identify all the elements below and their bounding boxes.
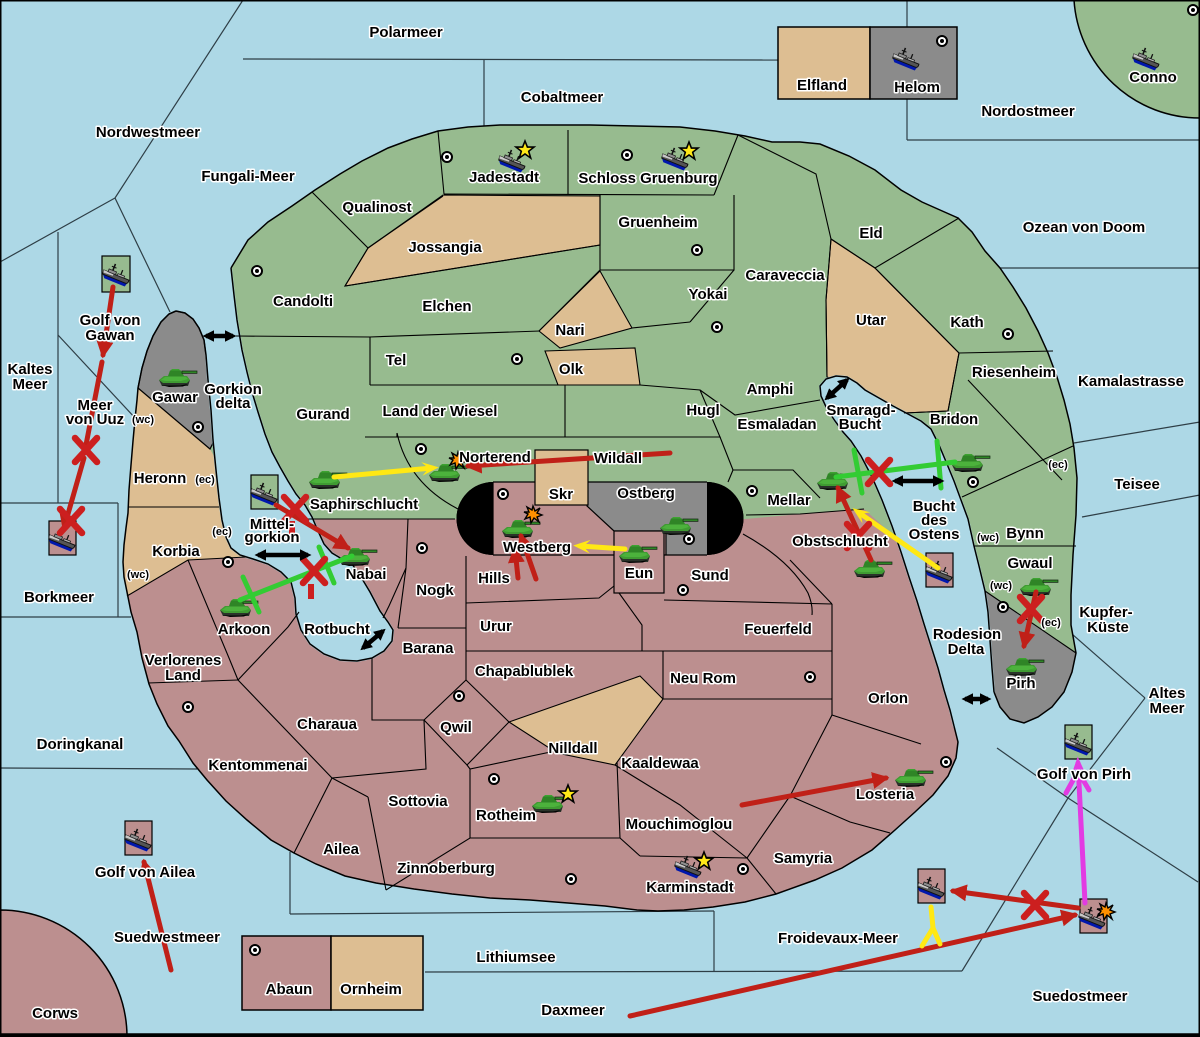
svg-text:Westberg: Westberg (503, 539, 571, 556)
svg-text:Land: Land (165, 667, 201, 684)
svg-text:Zinnoberburg: Zinnoberburg (397, 860, 495, 877)
svg-text:Gurand: Gurand (296, 406, 349, 423)
svg-text:Candolti: Candolti (273, 293, 333, 310)
svg-text:Kentommenai: Kentommenai (208, 757, 307, 774)
svg-text:(ec): (ec) (1041, 617, 1061, 629)
svg-text:Norterend: Norterend (459, 449, 531, 466)
svg-text:(wc): (wc) (127, 569, 149, 581)
svg-text:Kamalastrasse: Kamalastrasse (1078, 373, 1184, 390)
svg-text:Bynn: Bynn (1006, 525, 1044, 542)
svg-text:Abaun: Abaun (266, 981, 313, 998)
svg-text:Delta: Delta (948, 641, 985, 658)
svg-text:Qwil: Qwil (440, 719, 472, 736)
svg-text:Tel: Tel (386, 352, 407, 369)
svg-text:Elchen: Elchen (422, 298, 471, 315)
svg-text:Amphi: Amphi (747, 381, 794, 398)
svg-text:delta: delta (215, 395, 251, 412)
svg-text:Charaua: Charaua (297, 716, 358, 733)
svg-text:Gawar: Gawar (152, 389, 198, 406)
svg-text:Wildall: Wildall (594, 450, 642, 467)
svg-text:(ec): (ec) (195, 474, 215, 486)
svg-text:Schloss Gruenburg: Schloss Gruenburg (578, 170, 717, 187)
svg-text:Küste: Küste (1087, 619, 1129, 636)
svg-text:Meer: Meer (12, 376, 47, 393)
svg-text:Ornheim: Ornheim (340, 981, 402, 998)
svg-text:Froidevaux-Meer: Froidevaux-Meer (778, 930, 898, 947)
svg-text:Suedwestmeer: Suedwestmeer (114, 929, 220, 946)
svg-text:Cobaltmeer: Cobaltmeer (521, 89, 604, 106)
svg-text:Fungali-Meer: Fungali-Meer (201, 168, 295, 185)
svg-text:Elfland: Elfland (797, 77, 847, 94)
svg-text:Rotheim: Rotheim (476, 807, 536, 824)
svg-text:Golf von Ailea: Golf von Ailea (95, 864, 196, 881)
svg-text:(wc): (wc) (132, 414, 154, 426)
svg-text:Ostberg: Ostberg (617, 485, 675, 502)
svg-text:Sottovia: Sottovia (388, 793, 448, 810)
svg-text:Qualinost: Qualinost (342, 199, 411, 216)
svg-text:Yokai: Yokai (689, 286, 728, 303)
svg-text:Mouchimoglou: Mouchimoglou (626, 816, 733, 833)
svg-text:Eun: Eun (625, 565, 653, 582)
svg-text:Rotbucht: Rotbucht (304, 621, 370, 638)
svg-text:Gruenheim: Gruenheim (618, 214, 697, 231)
svg-text:Kath: Kath (950, 314, 983, 331)
svg-text:Helom: Helom (894, 79, 940, 96)
svg-text:Samyria: Samyria (774, 850, 833, 867)
svg-text:Suedostmeer: Suedostmeer (1032, 988, 1127, 1005)
svg-text:Urur: Urur (480, 618, 512, 635)
svg-text:(wc): (wc) (990, 580, 1012, 592)
svg-text:gorkion: gorkion (245, 529, 300, 546)
svg-text:Nabai: Nabai (346, 566, 387, 583)
svg-text:Caraveccia: Caraveccia (745, 267, 825, 284)
svg-text:Gawan: Gawan (85, 327, 134, 344)
svg-text:Obstschlucht: Obstschlucht (792, 533, 888, 550)
svg-text:Ostens: Ostens (909, 526, 960, 543)
svg-text:Korbia: Korbia (152, 543, 200, 560)
svg-text:Olk: Olk (559, 361, 584, 378)
svg-text:Pirh: Pirh (1006, 675, 1035, 692)
svg-text:Orlon: Orlon (868, 690, 908, 707)
svg-text:Kaaldewaa: Kaaldewaa (621, 755, 699, 772)
svg-text:Jossangia: Jossangia (408, 239, 482, 256)
svg-text:Arkoon: Arkoon (218, 621, 271, 638)
svg-text:Losteria: Losteria (856, 786, 915, 803)
svg-text:Heronn: Heronn (134, 470, 187, 487)
svg-text:von Uuz: von Uuz (66, 411, 124, 428)
svg-text:Golf von Pirh: Golf von Pirh (1037, 766, 1131, 783)
svg-text:Esmaladan: Esmaladan (737, 416, 816, 433)
svg-text:Utar: Utar (856, 312, 886, 329)
svg-text:Neu Rom: Neu Rom (670, 670, 736, 687)
svg-text:Ozean von Doom: Ozean von Doom (1023, 219, 1146, 236)
svg-text:(ec): (ec) (212, 526, 232, 538)
svg-text:(ec): (ec) (1048, 459, 1068, 471)
svg-text:Nordostmeer: Nordostmeer (981, 103, 1075, 120)
svg-text:Daxmeer: Daxmeer (541, 1002, 605, 1019)
svg-text:Borkmeer: Borkmeer (24, 589, 94, 606)
svg-text:Barana: Barana (403, 640, 455, 657)
svg-text:Bridon: Bridon (930, 411, 978, 428)
svg-text:Sund: Sund (691, 567, 729, 584)
svg-text:Nilldall: Nilldall (548, 740, 597, 757)
svg-text:Eld: Eld (859, 225, 882, 242)
svg-text:Karminstadt: Karminstadt (646, 879, 734, 896)
svg-text:Gwaul: Gwaul (1007, 555, 1052, 572)
svg-text:Nari: Nari (555, 322, 584, 339)
svg-text:Meer: Meer (1149, 700, 1184, 717)
svg-text:Skr: Skr (549, 486, 573, 503)
svg-text:Conno: Conno (1129, 69, 1176, 86)
svg-text:Teisee: Teisee (1114, 476, 1160, 493)
svg-text:Land der Wiesel: Land der Wiesel (383, 403, 498, 420)
svg-text:(wc): (wc) (977, 532, 999, 544)
svg-text:Feuerfeld: Feuerfeld (744, 621, 812, 638)
svg-text:Nogk: Nogk (416, 582, 454, 599)
svg-text:Corws: Corws (32, 1005, 78, 1022)
svg-text:Doringkanal: Doringkanal (37, 736, 124, 753)
svg-text:Polarmeer: Polarmeer (369, 24, 443, 41)
svg-text:Riesenheim: Riesenheim (972, 364, 1056, 381)
svg-text:Hugl: Hugl (686, 402, 719, 419)
svg-text:Chapablublek: Chapablublek (475, 663, 574, 680)
svg-text:Ailea: Ailea (323, 841, 360, 858)
svg-text:Jadestadt: Jadestadt (469, 169, 539, 186)
svg-text:Mellar: Mellar (767, 492, 811, 509)
svg-text:Lithiumsee: Lithiumsee (476, 949, 555, 966)
svg-text:Bucht: Bucht (839, 416, 882, 433)
svg-text:Hills: Hills (478, 570, 510, 587)
svg-text:Saphirschlucht: Saphirschlucht (310, 496, 418, 513)
svg-text:Nordwestmeer: Nordwestmeer (96, 124, 200, 141)
